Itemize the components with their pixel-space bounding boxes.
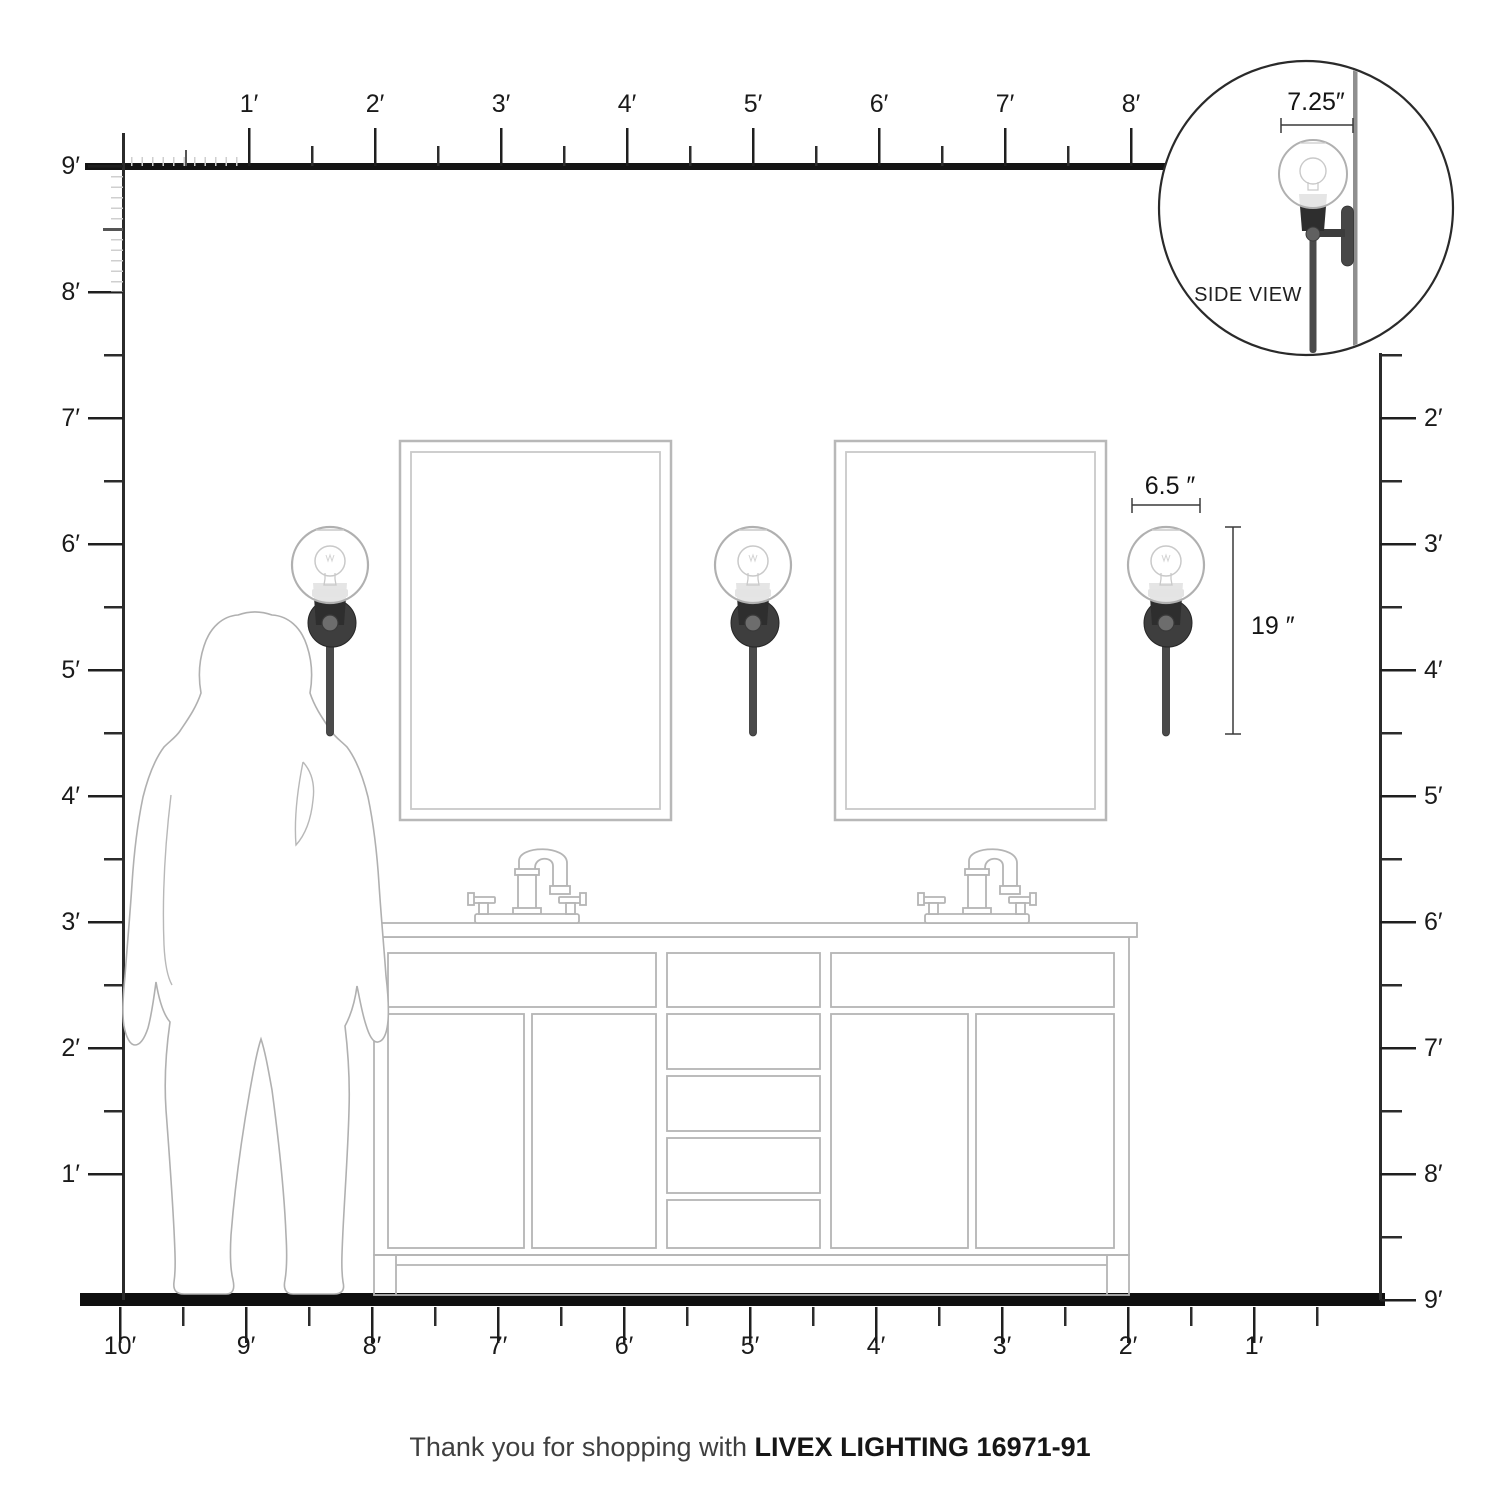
- height-dimension-line: [1225, 527, 1241, 734]
- ruler-label: 4′: [1424, 607, 1494, 733]
- mirror-left: [400, 441, 671, 820]
- ruler-label: 7′: [942, 90, 1068, 124]
- ruler-label: 2′: [1424, 355, 1494, 481]
- sconce-width-label: 6.5 ″: [1120, 472, 1220, 501]
- elevation-drawing: [0, 0, 1500, 1500]
- ruler-label: 2′: [1065, 1332, 1191, 1361]
- ruler-label: 5′: [0, 607, 80, 733]
- right-ruler-labels: 2′ 3′ 4′ 5′ 6′ 7′ 8′ 9′: [1424, 355, 1494, 1363]
- ruler-label: 4′: [0, 733, 80, 859]
- inset-dimension-label: 7.25″: [1266, 88, 1366, 117]
- ruler-label: 6′: [0, 481, 80, 607]
- ruler-label: 7′: [435, 1332, 561, 1361]
- ruler-label: 6′: [561, 1332, 687, 1361]
- sconce-height-label: 19 ″: [1251, 612, 1295, 641]
- left-ruler-labels: 9′ 8′ 7′ 6′ 5′ 4′ 3′ 2′ 1′: [0, 103, 80, 1237]
- ruler-label: 2′: [312, 90, 438, 124]
- ruler-label: 5′: [687, 1332, 813, 1361]
- ruler-label: 10′: [57, 1332, 183, 1361]
- ruler-label: 8′: [0, 229, 80, 355]
- vanity-countertop: [367, 923, 1137, 937]
- ruler-label: 3′: [1424, 481, 1494, 607]
- ruler-label: 6′: [816, 90, 942, 124]
- ruler-label: 1′: [0, 1111, 80, 1237]
- ruler-label: 2′: [0, 985, 80, 1111]
- person-silhouette: [123, 612, 388, 1294]
- vanity-body: [374, 937, 1129, 1255]
- vanity-base: [374, 1255, 1129, 1295]
- sconce-center: [715, 527, 791, 736]
- ruler-label: 3′: [0, 859, 80, 985]
- ruler-label: 3′: [939, 1332, 1065, 1361]
- ruler-label: 5′: [690, 90, 816, 124]
- ruler-label: 7′: [0, 355, 80, 481]
- ruler-label: 3′: [438, 90, 564, 124]
- ruler-label: 1′: [1191, 1332, 1317, 1361]
- footer-message: Thank you for shopping with: [409, 1432, 747, 1462]
- faucet-right: [918, 849, 1036, 923]
- ruler-label: 9′: [0, 103, 80, 229]
- side-view-caption: SIDE VIEW: [1188, 284, 1308, 307]
- ruler-label: 9′: [183, 1332, 309, 1361]
- ruler-label: 9′: [1424, 1237, 1494, 1363]
- top-ruler-labels: 1′ 2′ 3′ 4′ 5′ 6′ 7′ 8′: [186, 90, 1194, 124]
- bottom-ruler-labels: 10′ 9′ 8′ 7′ 6′ 5′ 4′ 3′ 2′ 1′: [57, 1332, 1317, 1361]
- ruler-label: 4′: [564, 90, 690, 124]
- footer: Thank you for shopping with LIVEX LIGHTI…: [0, 1432, 1500, 1463]
- faucet-left: [468, 849, 586, 923]
- sconce-right: [1128, 527, 1204, 736]
- vanity-cabinet: [367, 923, 1137, 1295]
- ruler-label: 8′: [309, 1332, 435, 1361]
- footer-product-id: LIVEX LIGHTING 16971-91: [755, 1432, 1091, 1462]
- scale-diagram: 1′ 2′ 3′ 4′ 5′ 6′ 7′ 8′ 9′ 8′ 7′ 6′ 5′ 4…: [0, 0, 1500, 1500]
- ruler-label: 6′: [1424, 859, 1494, 985]
- ruler-label: 1′: [186, 90, 312, 124]
- ruler-label: 8′: [1068, 90, 1194, 124]
- mirror-right: [835, 441, 1106, 820]
- ruler-label: 5′: [1424, 733, 1494, 859]
- ruler-label: 4′: [813, 1332, 939, 1361]
- ruler-label: 7′: [1424, 985, 1494, 1111]
- ruler-label: 8′: [1424, 1111, 1494, 1237]
